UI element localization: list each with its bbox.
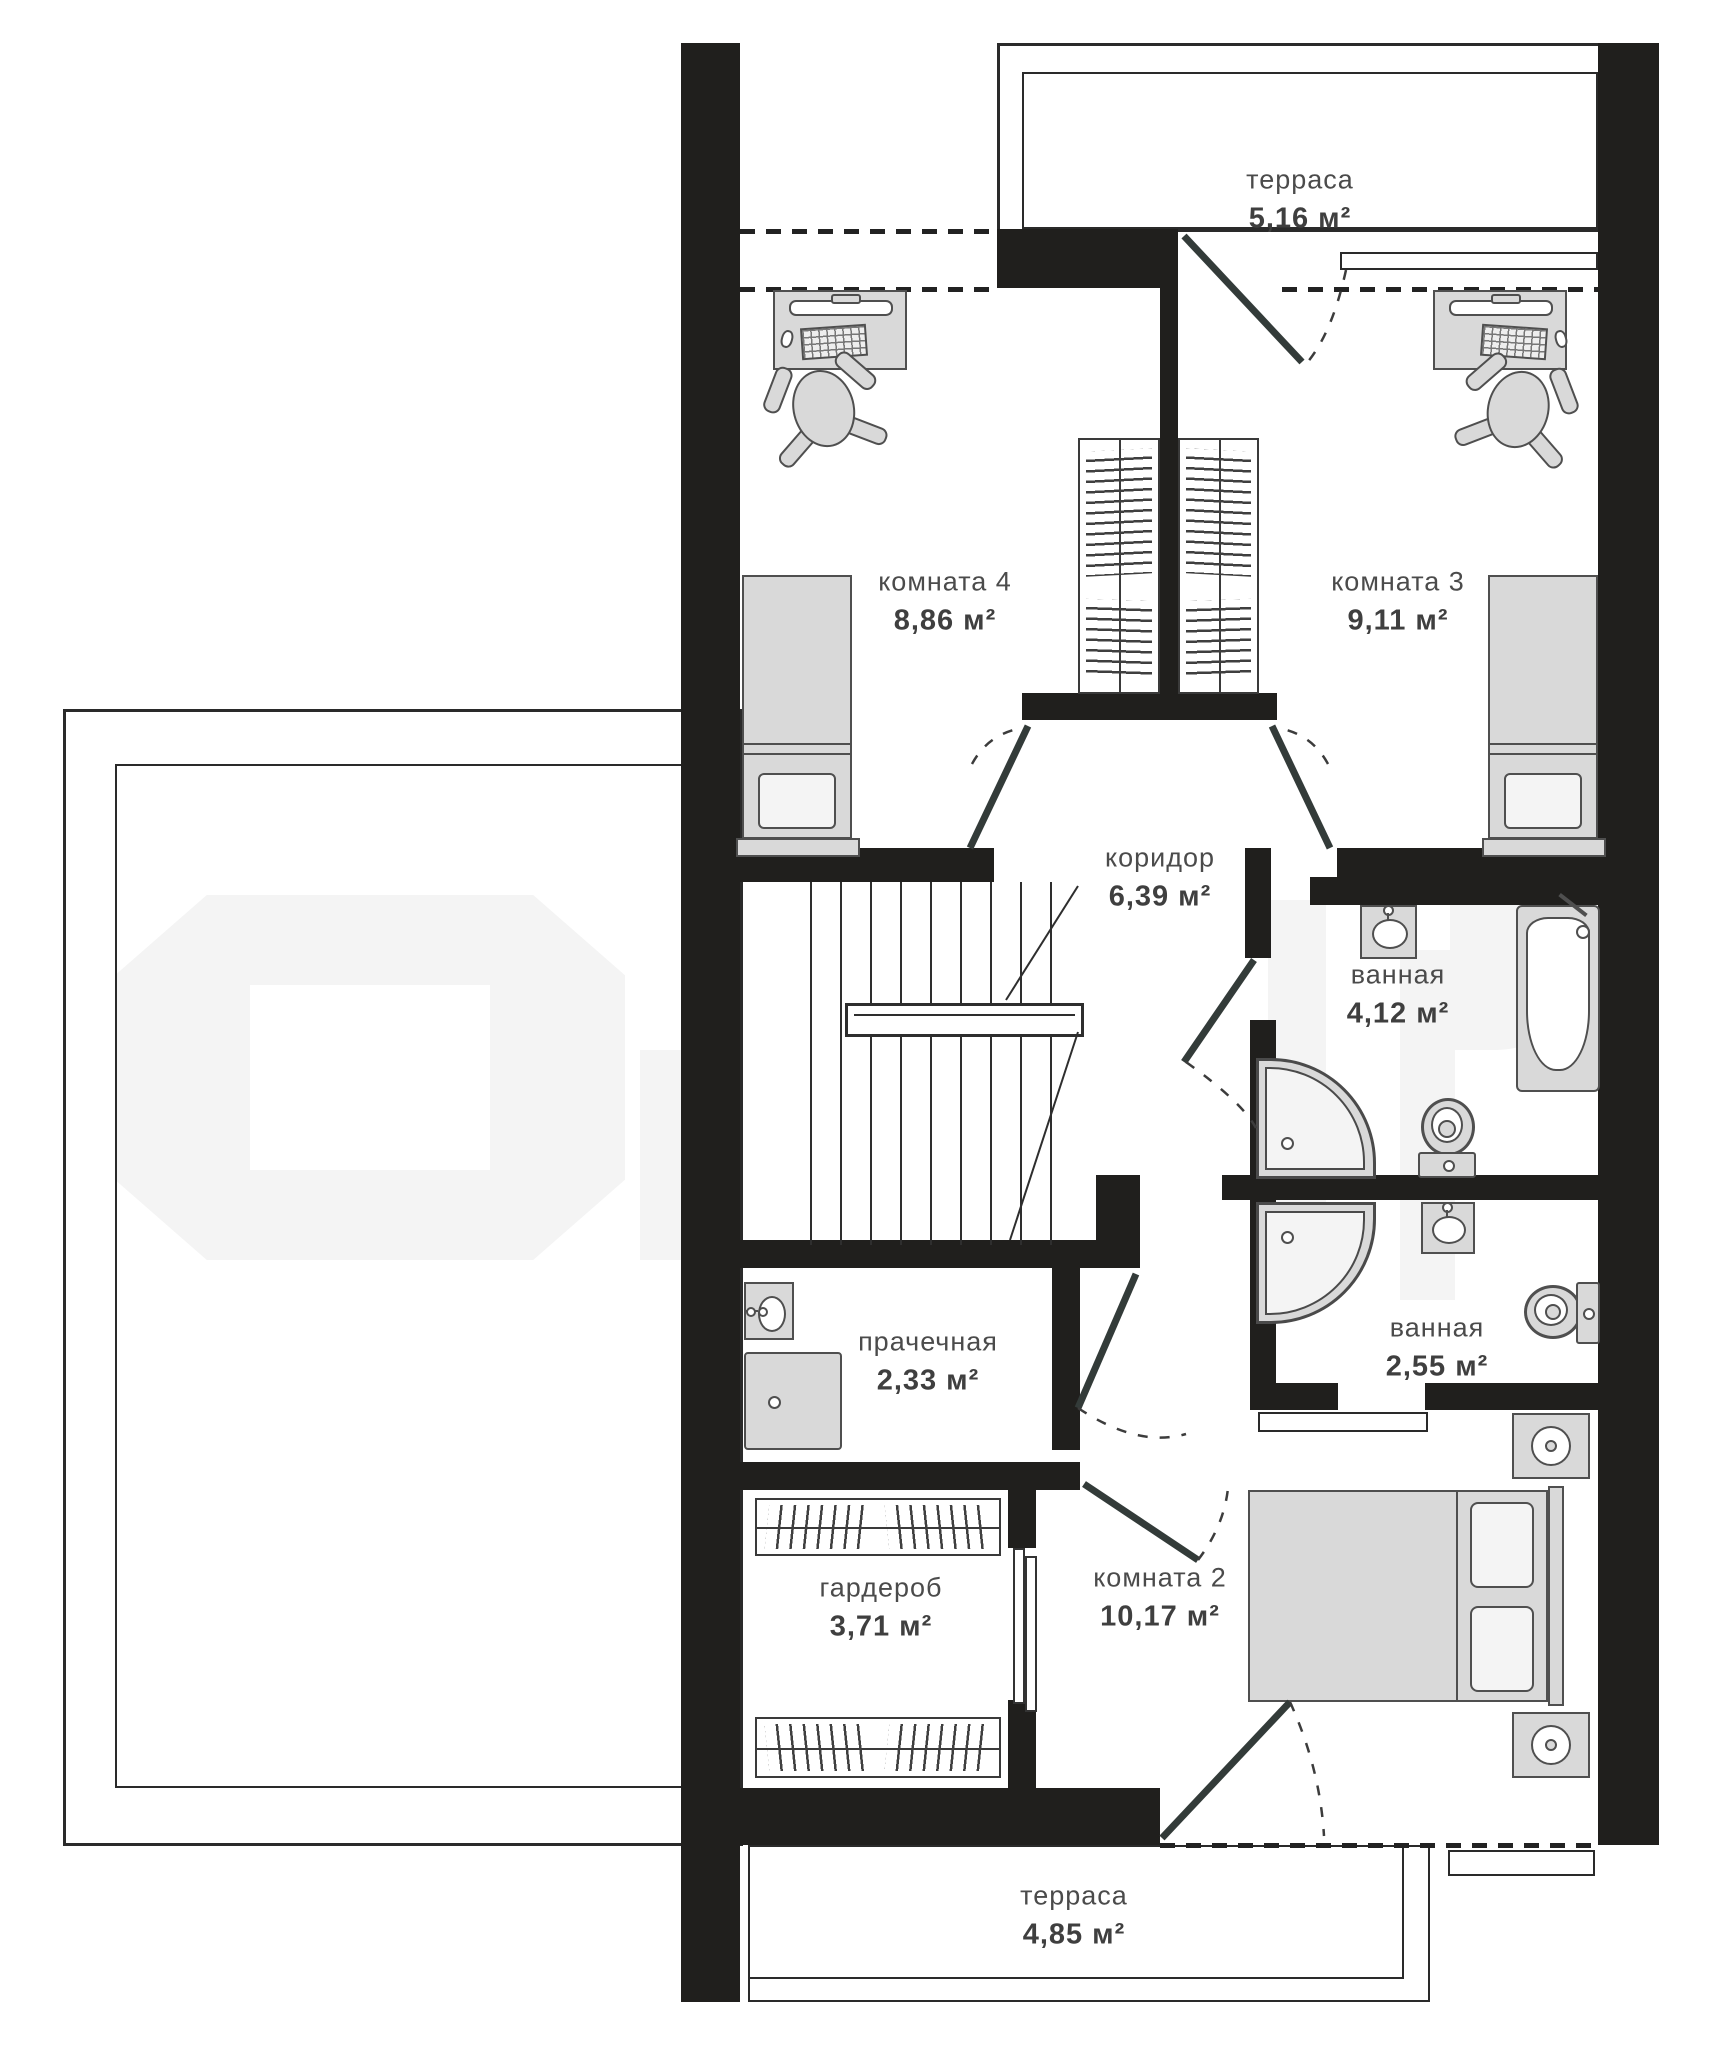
- room-label-terrace-top: терраса 5,16 м²: [1246, 165, 1354, 236]
- room-label-bathroom2: ванная 2,55 м²: [1386, 1313, 1489, 1384]
- room-label-room3: комната 3 9,11 м²: [1331, 567, 1465, 638]
- stairs-break-line: [1006, 886, 1078, 1240]
- room-label-room4: комната 4 8,86 м²: [878, 567, 1012, 638]
- room-label-wardrobe: гардероб 3,71 м²: [820, 1573, 943, 1644]
- floor-plan: терраса 5,16 м² комната 4 8,86 м² комнат…: [0, 0, 1728, 2068]
- room-label-terrace-bottom: терраса 4,85 м²: [1020, 1881, 1128, 1952]
- room-label-room2: комната 2 10,17 м²: [1093, 1563, 1227, 1634]
- room-label-laundry: прачечная 2,33 м²: [858, 1327, 998, 1398]
- doors-overlay: [0, 0, 1728, 2068]
- room-label-bathroom1: ванная 4,12 м²: [1347, 960, 1450, 1031]
- room-label-corridor: коридор 6,39 м²: [1105, 843, 1215, 914]
